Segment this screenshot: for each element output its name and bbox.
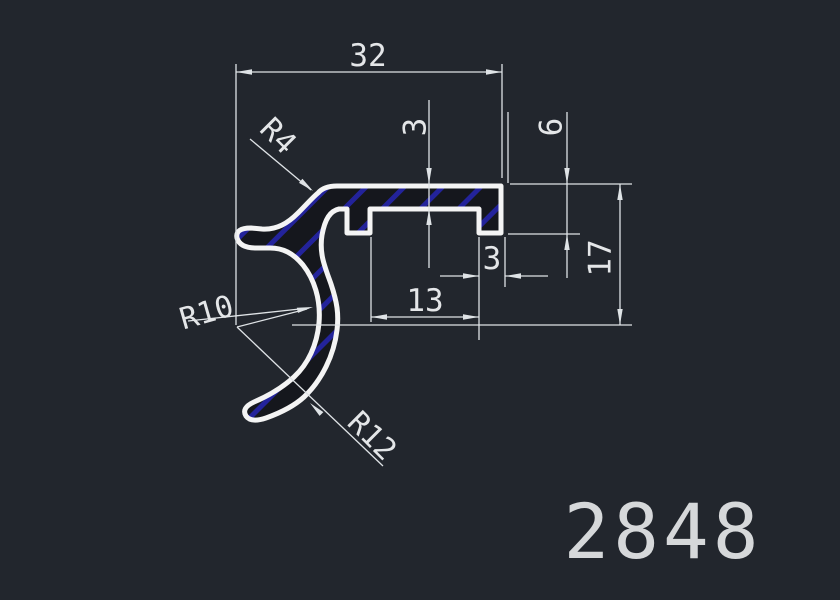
- arrowhead: [299, 179, 313, 191]
- radius-r4: R4: [250, 111, 313, 191]
- part-number: 2848: [563, 487, 762, 576]
- dimension-step-height: 6: [534, 112, 570, 278]
- dimension-slot-width: 13: [371, 237, 479, 322]
- dim-label-step-height: 6: [534, 118, 570, 137]
- arrowhead: [564, 168, 569, 184]
- cad-drawing: 32 3 6 17 3 13: [0, 0, 840, 600]
- arrowhead: [426, 168, 431, 184]
- cad-drawing-canvas: 32 3 6 17 3 13: [0, 0, 840, 600]
- dim-label-overall-height: 17: [583, 239, 619, 276]
- dim-label-plate-thickness: 3: [398, 118, 434, 137]
- arrowhead: [617, 309, 622, 325]
- arrowhead: [236, 69, 252, 74]
- dim-label-slot-width: 13: [406, 283, 443, 319]
- dim-label-fillet-radius: R4: [253, 111, 303, 161]
- arrowhead: [310, 403, 323, 416]
- arrowhead: [617, 184, 622, 200]
- arrowhead: [463, 273, 479, 278]
- arrowhead: [371, 314, 387, 319]
- dim-label-inner-radius: R10: [176, 289, 238, 338]
- arrowhead: [486, 69, 502, 74]
- arrowhead: [463, 314, 479, 319]
- arrowhead: [297, 307, 313, 313]
- radius-r10: R10: [176, 289, 313, 338]
- dim-label-overall-width: 32: [349, 38, 386, 74]
- dim-label-outer-radius: R12: [340, 405, 403, 468]
- profile-outline: [237, 186, 501, 420]
- arrowhead: [505, 273, 521, 278]
- dimension-overall-width: 32: [236, 38, 502, 325]
- arrowhead: [564, 234, 569, 250]
- dim-label-foot-width: 3: [483, 241, 502, 277]
